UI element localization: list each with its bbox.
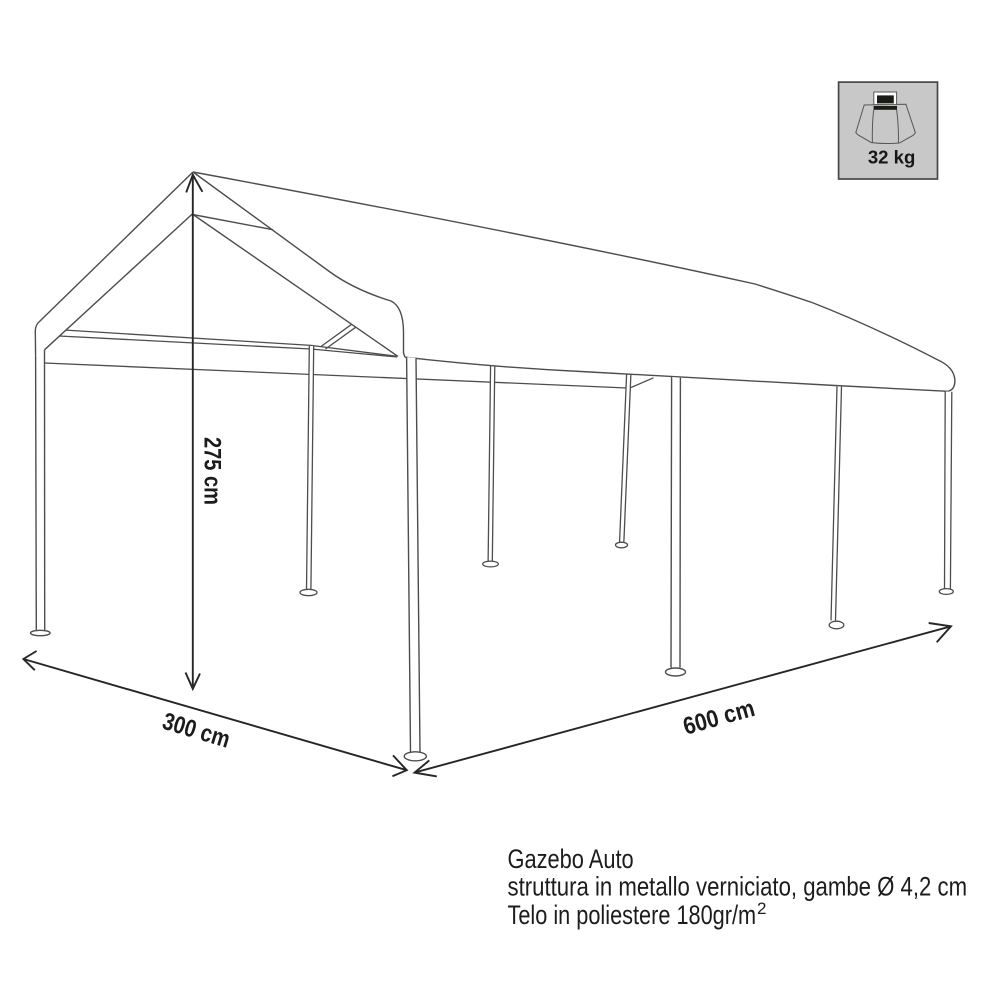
svg-text:275 cm: 275 cm — [199, 437, 226, 505]
svg-text:Gazebo Auto: Gazebo Auto — [508, 844, 634, 874]
svg-text:struttura in metallo verniciat: struttura in metallo verniciato, gambe Ø… — [508, 872, 968, 902]
svg-text:2: 2 — [757, 899, 766, 918]
svg-text:32 kg: 32 kg — [868, 147, 916, 168]
svg-text:Telo in poliestere 180gr/m: Telo in poliestere 180gr/m — [508, 900, 757, 930]
